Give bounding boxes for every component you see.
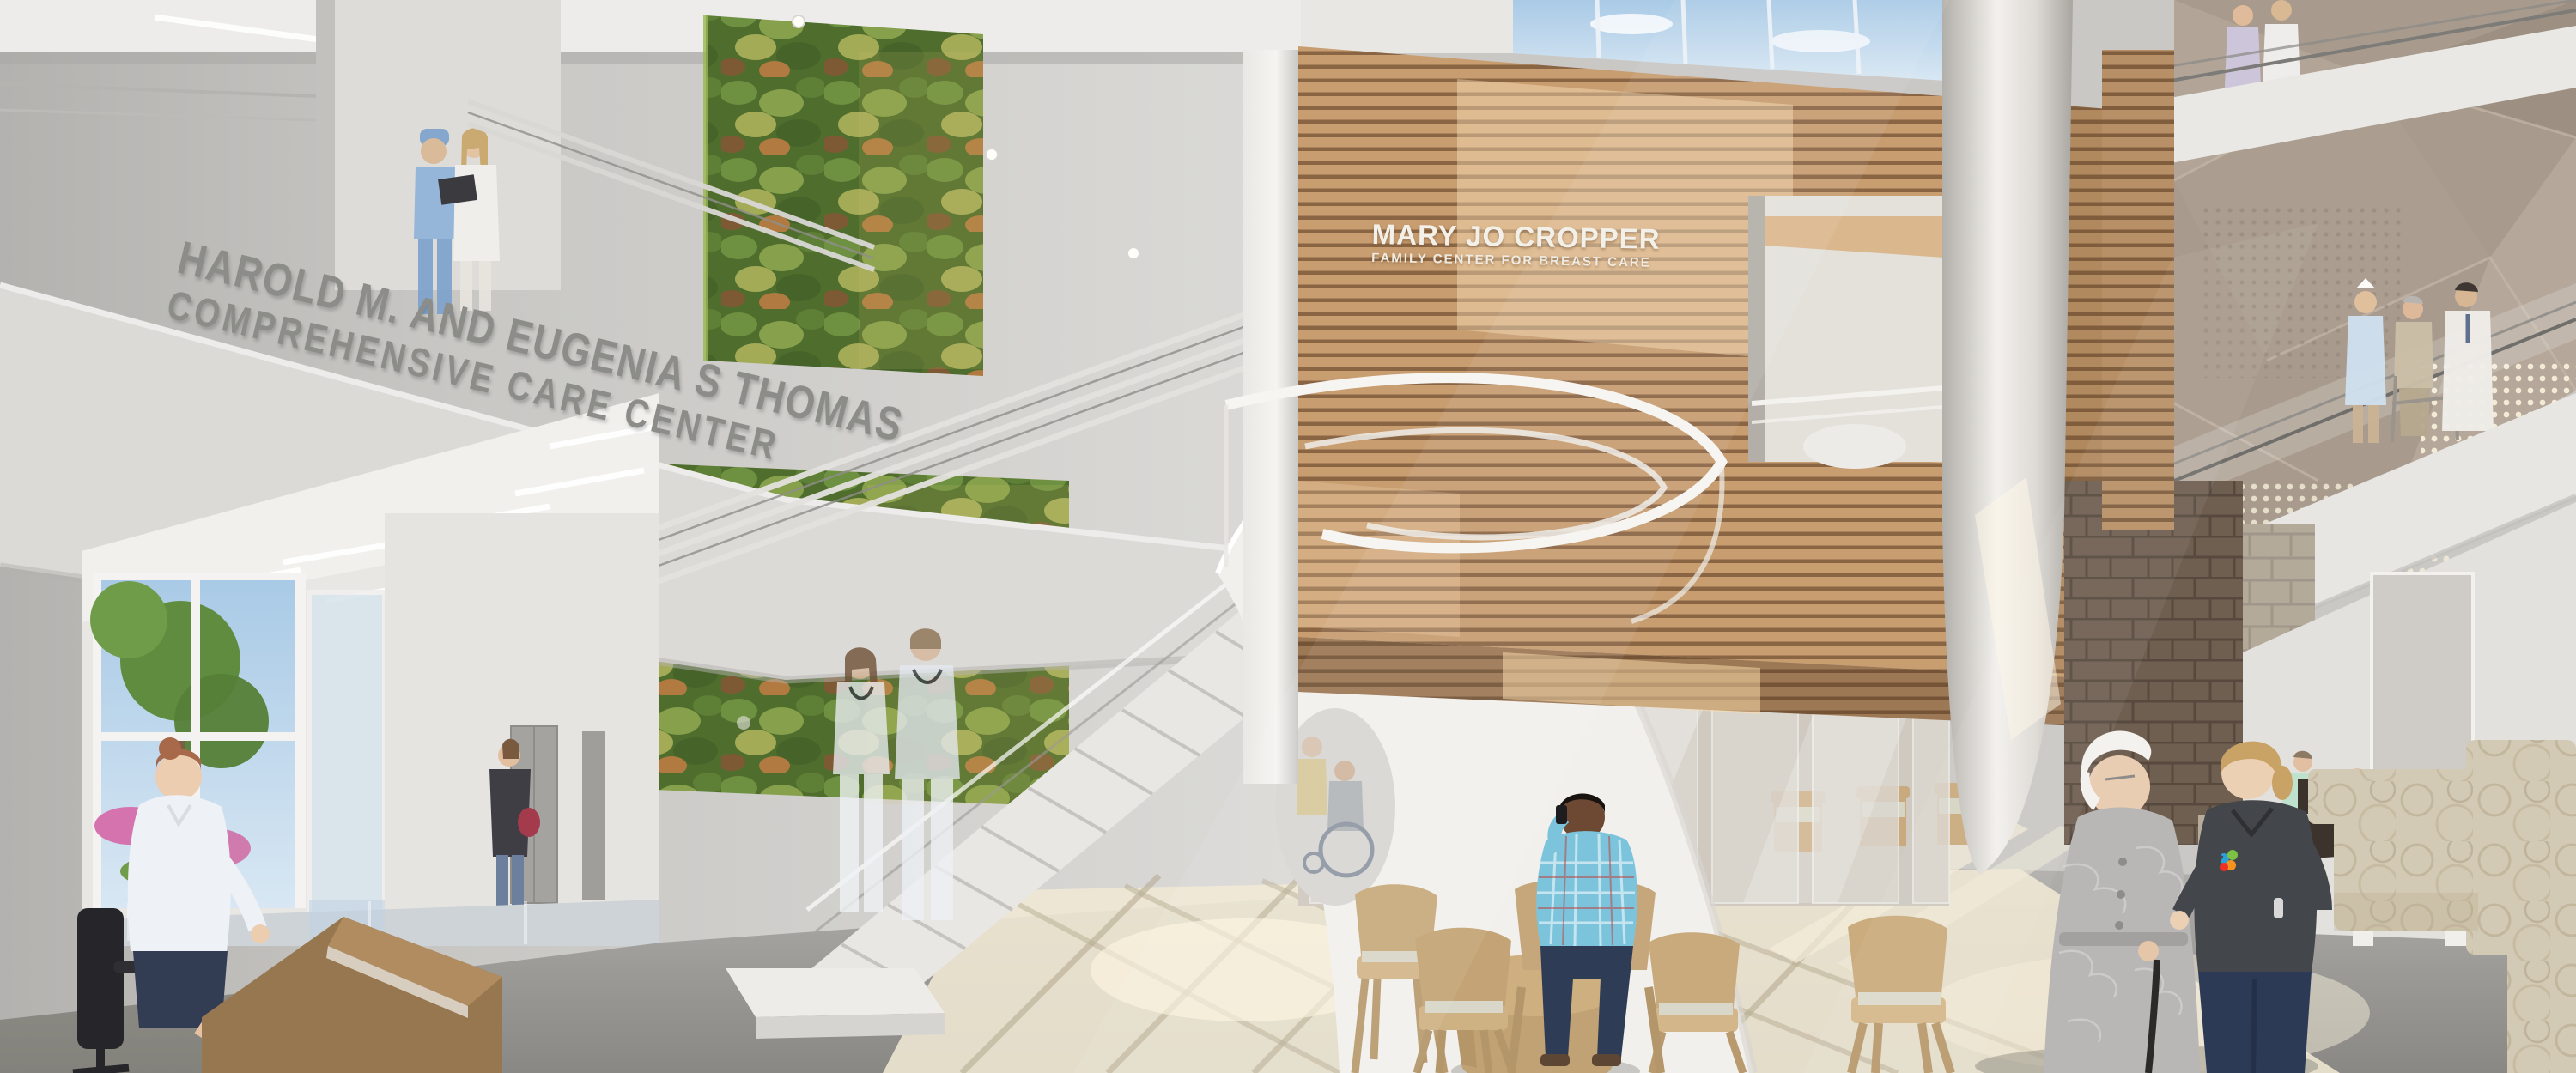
white-pillar [1243,50,1298,784]
stair-landing [726,968,945,1017]
atrium-rendering: HAROLD M. AND EUGENIA S THOMAS COMPREHEN… [0,0,2576,1073]
doorway [2372,573,2473,783]
scene-graphics [0,0,2576,1073]
green-wall-upper [706,15,983,376]
